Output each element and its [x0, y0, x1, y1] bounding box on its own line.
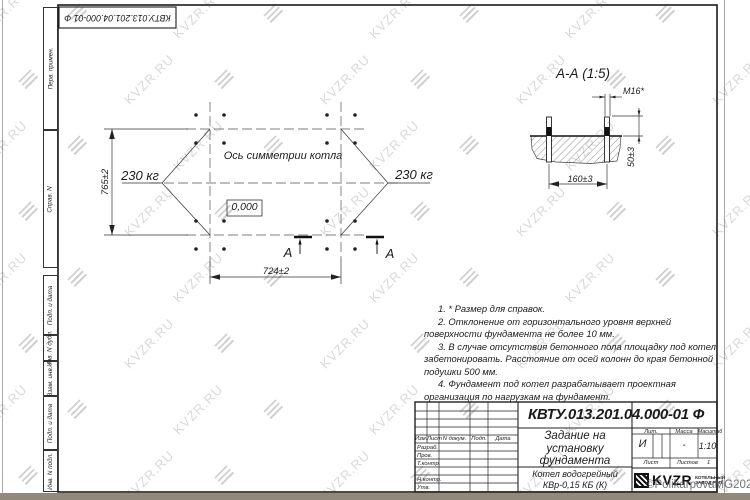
frame-box-sprav-n: Справ. N	[43, 130, 58, 268]
viewer-background-strip	[0, 493, 750, 500]
frame-box-label: Подп. и дата	[47, 285, 54, 324]
sheet-label: Лист	[632, 460, 670, 466]
frame-box-perv-primen: Перв. примен.	[43, 7, 58, 130]
product-name: Котел водогрейный КВр-0,15 КБ (К)	[518, 469, 632, 490]
note-line: 2. Отклонение от горизонтального уровня …	[424, 316, 716, 341]
header-izm: Изм.	[415, 436, 427, 442]
notes-block: 1. * Размер для справок. 2. Отклонение о…	[424, 303, 716, 403]
load-label-right: 230 кг	[390, 167, 438, 182]
frame-box-label: Подп. и дата	[47, 403, 54, 442]
sheets-row: Листов 1	[670, 460, 717, 466]
mass-value: -	[670, 440, 698, 451]
top-stamp: КВТУ.013.201.04.000-01 Ф	[59, 7, 176, 28]
sheets-value: 1	[707, 460, 710, 466]
scale-value: 1:10	[698, 441, 717, 451]
doc-number: КВТУ.013.201.04.000-01 Ф	[520, 402, 712, 428]
drawing-title-line: Задание на	[518, 430, 632, 443]
frame-box-label: Справ. N	[47, 186, 54, 212]
frame-box-vzam-inv: Взам. инв. N	[43, 361, 58, 396]
dim-width-724: 724±2	[254, 266, 298, 277]
header-podp: Подп.	[470, 436, 488, 442]
dim-bolt-height-50: 50±3	[626, 137, 638, 177]
sheets-label: Листов	[677, 460, 698, 466]
header-ndoc: N докум.	[439, 436, 470, 442]
load-label-left: 230 кг	[116, 168, 164, 183]
frame-box-inv-podl: Инв. N подл.	[43, 450, 58, 492]
product-name-line: КВр-0,15 КБ (К)	[518, 480, 632, 491]
row-label-ncontr: Н.контр.	[417, 477, 442, 483]
row-label-utv: Утв.	[417, 485, 430, 491]
section-letter-right: А	[383, 246, 397, 261]
frame-box-label: Взам. инв. N	[47, 360, 54, 397]
dim-bolt-spacing-160: 160±3	[560, 174, 600, 184]
section-letter-left: А	[281, 245, 295, 260]
watermark-copyright: ©PolikarpovaMG2021	[646, 479, 750, 491]
drawing-sheet: KVZR.RUKVZR.RUKVZR.RUKVZR.RUKVZR.RUKVZR.…	[0, 0, 750, 500]
header-list: Лист	[427, 436, 439, 442]
plan-view	[104, 102, 430, 284]
section-title: А-А (1:5)	[556, 66, 610, 81]
row-label-razrab: Разраб.	[417, 445, 438, 451]
frame-box-inv-dubl: Инв. N дубл.	[43, 335, 58, 361]
row-label-tcontr: Т.контр.	[417, 461, 440, 467]
note-line: 1. * Размер для справок.	[424, 303, 716, 316]
dim-height-765: 765±2	[100, 162, 112, 202]
product-name-line: Котел водогрейный	[518, 469, 632, 480]
mass-label: Масса	[670, 429, 698, 435]
lit-value: И	[632, 438, 653, 450]
bolt-thread-label: М16*	[623, 86, 644, 96]
note-line: 3. В случае отсутствия бетонного пола пл…	[424, 341, 716, 379]
scale-label: Масштаб	[698, 429, 717, 435]
lit-label: Лит.	[632, 429, 670, 435]
symmetry-axis-label: Ось симметрии котла	[220, 150, 346, 162]
drawing-title-line: установку	[518, 443, 632, 456]
drawing-title: Задание на установку фундамента	[518, 430, 632, 468]
frame-box-label: Перв. примен.	[47, 48, 54, 90]
elevation-mark: 0,000	[227, 201, 262, 213]
drawing-title-line: фундамента	[518, 455, 632, 468]
frame-box-podp-data-1: Подп. и дата	[43, 275, 58, 335]
header-data: Дата	[488, 436, 518, 442]
frame-box-label: Инв. N подл.	[47, 453, 54, 490]
note-line: 4. Фундамент под котел разрабатывает про…	[424, 378, 716, 403]
frame-box-podp-data-2: Подп. и дата	[43, 396, 58, 450]
row-label-prov: Пров.	[417, 453, 432, 459]
